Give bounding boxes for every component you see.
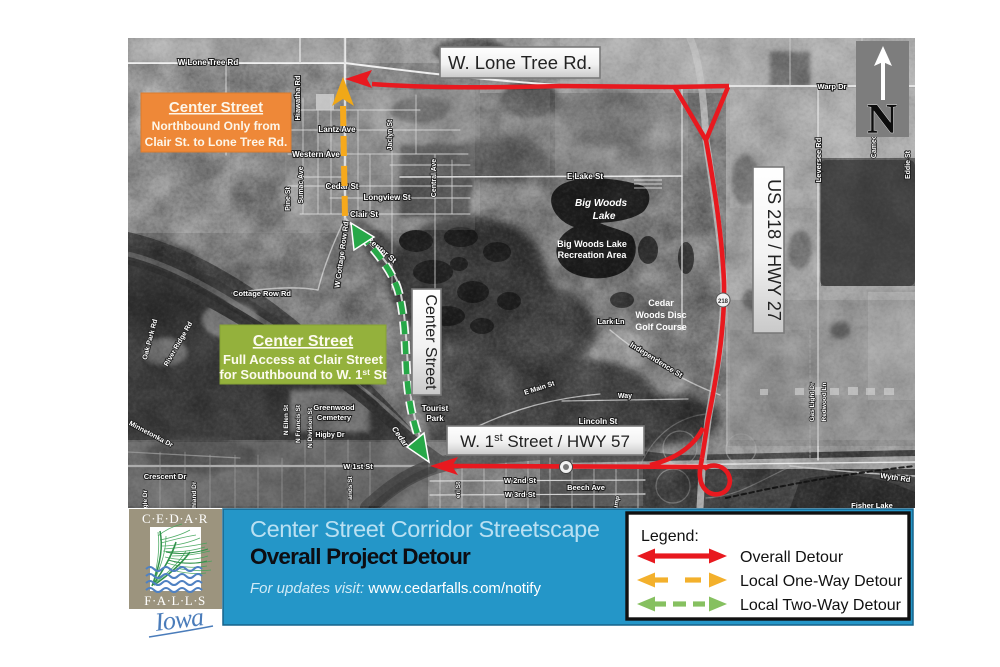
svg-text:Northbound Only from: Northbound Only from — [152, 119, 281, 133]
svg-text:W 3rd St: W 3rd St — [505, 490, 536, 499]
svg-text:Center Street: Center Street — [169, 99, 263, 116]
svg-text:Crescent Dr: Crescent Dr — [144, 472, 187, 481]
svg-text:W. Lone Tree Rd.: W. Lone Tree Rd. — [448, 52, 592, 73]
svg-text:Local One-Way Detour: Local One-Way Detour — [740, 573, 903, 590]
svg-text:C·E·D·A·R: C·E·D·A·R — [142, 511, 208, 526]
svg-text:Park: Park — [426, 414, 444, 423]
svg-text:Recreation Area: Recreation Area — [558, 250, 628, 260]
svg-text:Greenwood: Greenwood — [313, 403, 355, 412]
svg-text:N Francis St: N Francis St — [295, 404, 302, 443]
svg-text:Sumac Ave: Sumac Ave — [298, 166, 305, 203]
svg-text:W 2nd St: W 2nd St — [504, 476, 537, 485]
svg-text:Big Woods Lake: Big Woods Lake — [557, 239, 627, 249]
svg-text:N: N — [867, 97, 897, 143]
svg-text:Gas Light Dr: Gas Light Dr — [809, 382, 816, 421]
svg-text:Redwood Ln: Redwood Ln — [821, 382, 828, 421]
svg-text:Big Woods: Big Woods — [575, 198, 627, 209]
svg-text:Clair St: Clair St — [350, 210, 378, 219]
svg-text:W Lone Tree Rd: W Lone Tree Rd — [178, 58, 239, 67]
svg-text:Leversee Rd: Leversee Rd — [814, 137, 823, 182]
svg-text:for Southbound to W. 1st St: for Southbound to W. 1st St — [219, 367, 387, 382]
svg-text:Lake: Lake — [593, 211, 616, 222]
svg-text:N Division St: N Division St — [307, 407, 314, 448]
svg-text:For updates visit: www.cedarfa: For updates visit: www.cedarfalls.com/no… — [250, 580, 541, 597]
svg-text:Golf Course: Golf Course — [635, 322, 687, 332]
svg-text:Western Ave: Western Ave — [292, 150, 340, 159]
svg-text:Center Street: Center Street — [253, 333, 354, 350]
svg-text:Lantz Ave: Lantz Ave — [318, 125, 356, 134]
svg-text:Center Street Corridor Streets: Center Street Corridor Streetscape — [250, 516, 600, 542]
svg-text:Cemetery: Cemetery — [317, 413, 352, 422]
svg-text:Cedar: Cedar — [648, 298, 674, 308]
svg-text:Cottage Row Rd: Cottage Row Rd — [233, 289, 291, 298]
svg-text:Longview St: Longview St — [363, 193, 410, 202]
svg-text:Pine St: Pine St — [285, 186, 292, 210]
svg-text:US 218 / HWY 27: US 218 / HWY 27 — [764, 179, 784, 321]
svg-text:Jaclyn St: Jaclyn St — [387, 119, 394, 150]
svg-text:Overall Project Detour: Overall Project Detour — [250, 544, 471, 569]
svg-text:Way: Way — [618, 393, 632, 400]
svg-text:Woods Disc: Woods Disc — [635, 310, 686, 320]
svg-text:Lark Ln: Lark Ln — [597, 317, 625, 326]
svg-text:Overall Detour: Overall Detour — [740, 549, 844, 566]
svg-text:Clair St. to Lone Tree Rd.: Clair St. to Lone Tree Rd. — [145, 135, 288, 149]
svg-text:Full Access at Clair Street: Full Access at Clair Street — [223, 352, 384, 367]
svg-text:E Lake St: E Lake St — [567, 172, 603, 181]
svg-text:Eddie St: Eddie St — [905, 150, 912, 179]
svg-text:Lincoln St: Lincoln St — [579, 417, 618, 426]
svg-text:Hiawatha Rd: Hiawatha Rd — [293, 75, 302, 120]
svg-text:Center Street: Center Street — [422, 294, 439, 390]
svg-text:Beech Ave: Beech Ave — [567, 483, 605, 492]
svg-text:W. 1st Street / HWY 57: W. 1st Street / HWY 57 — [460, 432, 630, 451]
svg-text:Central Ave: Central Ave — [431, 159, 438, 197]
svg-text:N Ellen St: N Ellen St — [283, 404, 290, 435]
svg-text:Local Two-Way Detour: Local Two-Way Detour — [740, 597, 902, 614]
svg-text:Tourist: Tourist — [422, 404, 449, 413]
svg-text:Legend:: Legend: — [641, 528, 699, 545]
svg-text:Warp Dr: Warp Dr — [818, 82, 847, 91]
svg-text:Higby Dr: Higby Dr — [315, 432, 344, 439]
svg-text:218: 218 — [718, 299, 729, 305]
svg-text:eri St: eri St — [455, 481, 462, 498]
svg-text:W 1st St: W 1st St — [343, 462, 373, 471]
svg-text:ands St: ands St — [347, 475, 354, 499]
